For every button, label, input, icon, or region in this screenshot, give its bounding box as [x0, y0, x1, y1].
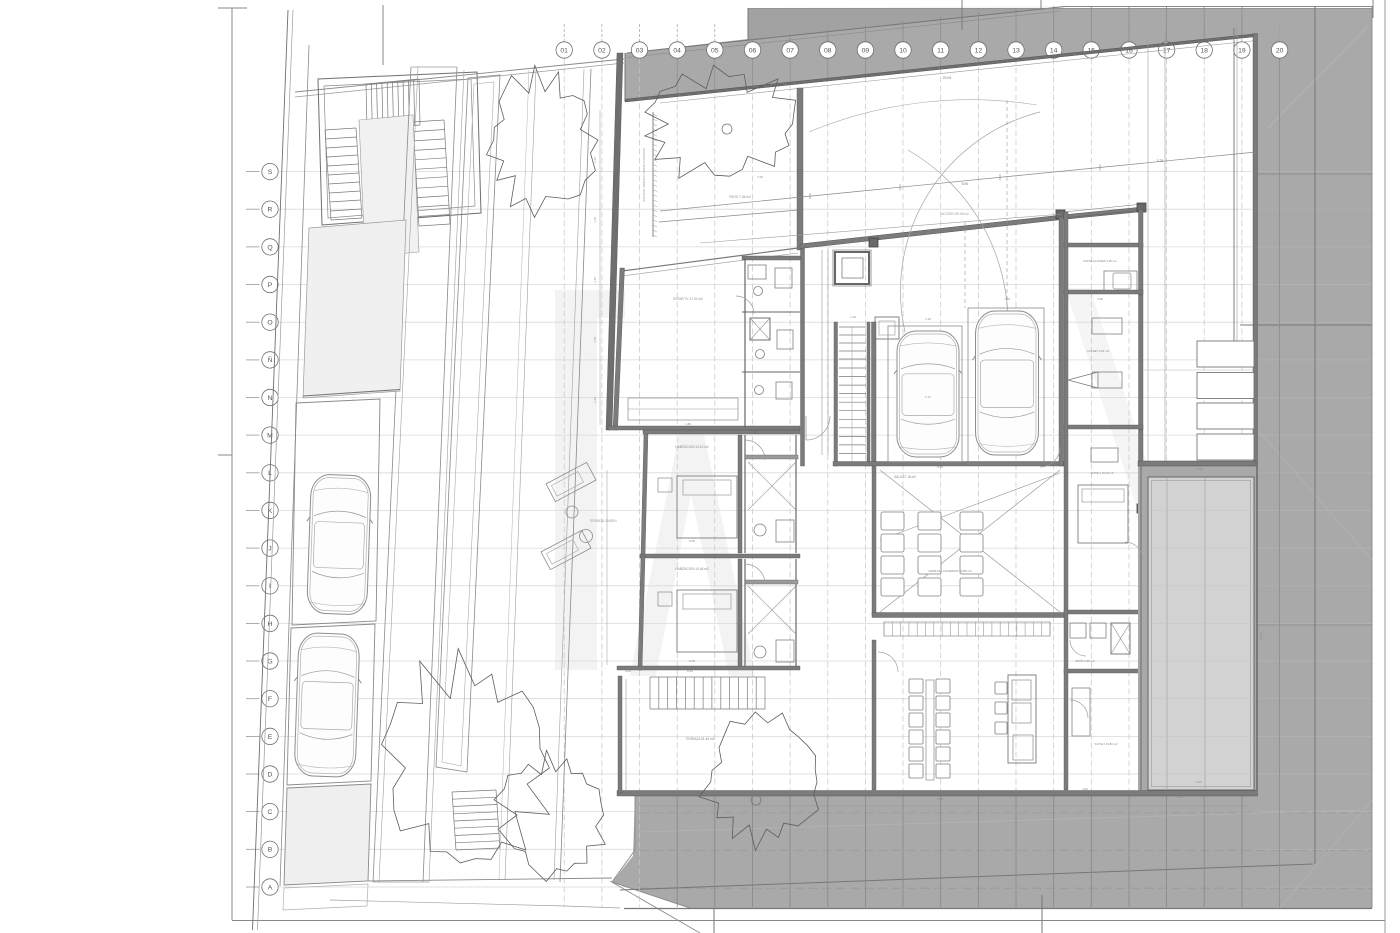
svg-text:PATIO 7.06 m2: PATIO 7.06 m2 — [729, 195, 751, 199]
svg-text:H: H — [268, 621, 273, 628]
svg-text:SUITE 2 15.80 m2: SUITE 2 15.80 m2 — [1094, 742, 1117, 746]
svg-text:R: R — [268, 207, 273, 214]
svg-text:D: D — [268, 771, 273, 778]
svg-text:19: 19 — [1238, 47, 1246, 54]
svg-text:13.05: 13.05 — [1259, 632, 1263, 640]
svg-text:12: 12 — [975, 47, 983, 54]
svg-text:3.30: 3.30 — [1197, 467, 1203, 471]
svg-text:5.90: 5.90 — [962, 182, 969, 186]
svg-text:SUITE 1 16.16 m2: SUITE 1 16.16 m2 — [1090, 471, 1113, 475]
svg-text:J: J — [268, 546, 271, 553]
svg-text:0.40: 0.40 — [625, 669, 631, 673]
svg-text:E: E — [268, 734, 273, 741]
svg-text:TERRAZA 51.45 m2: TERRAZA 51.45 m2 — [686, 737, 715, 741]
svg-text:ACCESO 69.06 m2: ACCESO 69.06 m2 — [941, 212, 969, 216]
svg-text:17: 17 — [1163, 47, 1171, 54]
svg-text:1.10: 1.10 — [850, 315, 856, 319]
svg-text:N: N — [268, 395, 273, 402]
svg-text:11: 11 — [937, 47, 944, 54]
svg-text:9.85: 9.85 — [937, 797, 943, 801]
svg-text:13: 13 — [1012, 47, 1020, 54]
svg-text:BAÑO 3.98 m2: BAÑO 3.98 m2 — [1076, 658, 1095, 663]
svg-text:B: B — [268, 847, 273, 854]
svg-text:Q: Q — [267, 244, 272, 251]
svg-text:05: 05 — [711, 47, 719, 54]
svg-text:SALA 27.18 m2: SALA 27.18 m2 — [894, 475, 916, 479]
svg-text:0.40: 0.40 — [687, 669, 693, 673]
svg-text:3.30: 3.30 — [1097, 297, 1103, 301]
svg-text:TERRAZA COMEDOR 20.85 m2: TERRAZA COMEDOR 20.85 m2 — [928, 569, 972, 573]
svg-text:M: M — [267, 433, 273, 440]
svg-text:INSTALACIONES 4.95 m2: INSTALACIONES 4.95 m2 — [1083, 259, 1117, 263]
svg-text:HABITACION 13.46 m2: HABITACION 13.46 m2 — [675, 567, 709, 571]
svg-text:3.75: 3.75 — [1157, 159, 1164, 163]
svg-text:03: 03 — [636, 47, 644, 54]
svg-text:7.06: 7.06 — [757, 175, 763, 179]
svg-text:14: 14 — [1050, 47, 1058, 54]
svg-text:6.25: 6.25 — [689, 659, 695, 663]
svg-text:3.48: 3.48 — [593, 277, 597, 283]
svg-text:Ñ: Ñ — [268, 355, 273, 364]
svg-text:S: S — [268, 169, 273, 176]
svg-text:20.04: 20.04 — [943, 76, 952, 80]
svg-text:2.70: 2.70 — [925, 395, 931, 399]
svg-text:TERRAZA JARDIN: TERRAZA JARDIN — [589, 519, 617, 523]
svg-text:7.95: 7.95 — [1004, 297, 1010, 301]
svg-text:7.26: 7.26 — [925, 317, 931, 321]
svg-text:9.25: 9.25 — [689, 539, 695, 543]
svg-text:10: 10 — [899, 47, 907, 54]
svg-text:O: O — [267, 320, 272, 327]
svg-text:A: A — [268, 884, 273, 891]
svg-text:08: 08 — [824, 47, 832, 54]
svg-text:C: C — [268, 809, 273, 816]
svg-text:3.48: 3.48 — [593, 337, 597, 343]
svg-text:3.48: 3.48 — [593, 157, 597, 163]
svg-text:3.04: 3.04 — [1196, 780, 1202, 784]
svg-text:ESTAR TV 17.01 m2: ESTAR TV 17.01 m2 — [673, 297, 703, 301]
svg-text:07: 07 — [786, 47, 794, 54]
svg-text:01: 01 — [560, 47, 568, 54]
svg-text:ESPACIO ABIERTO JARDIN INTERIO: ESPACIO ABIERTO JARDIN INTERIOR — [642, 147, 646, 202]
svg-text:09: 09 — [862, 47, 870, 54]
svg-text:F: F — [268, 696, 272, 703]
svg-text:18: 18 — [1200, 47, 1208, 54]
svg-text:CLOSET 9.02 m2: CLOSET 9.02 m2 — [1087, 349, 1109, 353]
svg-text:02: 02 — [598, 47, 606, 54]
svg-text:3.48: 3.48 — [593, 217, 597, 223]
svg-text:1.80: 1.80 — [685, 422, 691, 426]
svg-text:3.48: 3.48 — [593, 397, 597, 403]
svg-text:20: 20 — [1276, 47, 1284, 54]
svg-text:HABITACION 13.10 m2: HABITACION 13.10 m2 — [675, 445, 709, 449]
svg-text:5.85: 5.85 — [937, 465, 943, 469]
svg-text:P: P — [268, 282, 273, 289]
svg-text:04: 04 — [673, 47, 681, 54]
svg-text:2.04: 2.04 — [1177, 795, 1183, 799]
svg-text:3.42: 3.42 — [1082, 787, 1088, 791]
svg-text:06: 06 — [749, 47, 757, 54]
